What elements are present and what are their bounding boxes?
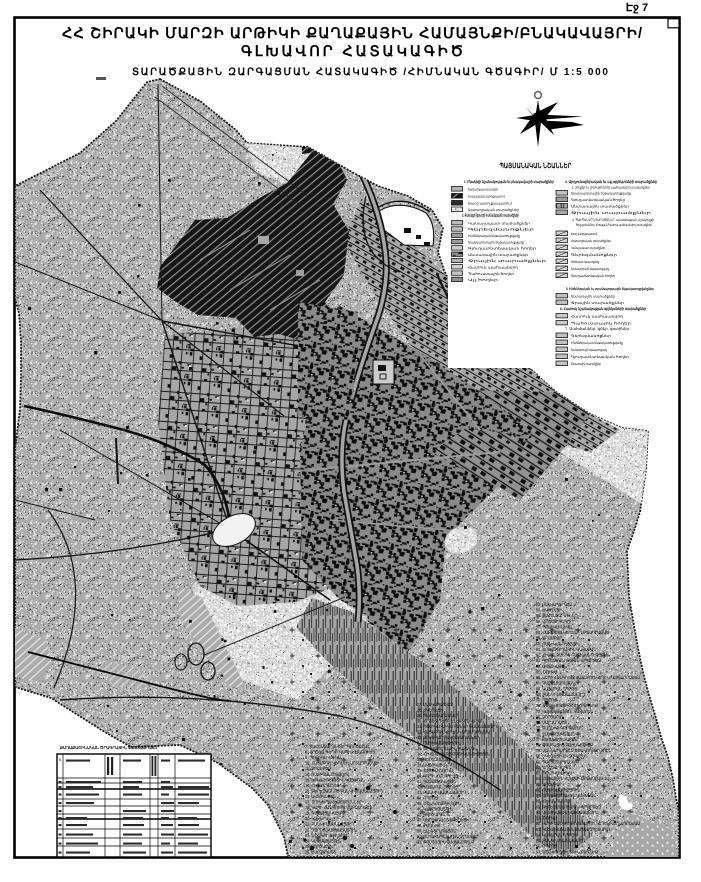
svg-text:1. Բնակելի նշանակության եւ բնա: 1. Բնակելի նշանակության եւ բնակավայրի տա…	[464, 179, 554, 184]
svg-text:19. ԳԱԶԱԼՑԱԿԱՅԱՆ: 19. ԳԱԶԱԼՑԱԿԱՅԱՆ	[305, 811, 344, 816]
svg-text:27. ՄԱՆԿԱՊԱՐՏԵԶ: 27. ՄԱՆԿԱՊԱՐՏԵԶ	[417, 702, 453, 707]
svg-text:8. ՀՐՇԵՋ ԴԵՊՈ ԿԱՊԻ ՀԱՆԳՈՒՅՑ: 8. ՀՐՇԵՋ ԴԵՊՈ ԿԱՊԻ ՀԱՆԳՈՒՅՑ	[305, 750, 375, 755]
svg-text:26. ՄԱՐԶԱԴԱՇՏ: 26. ՄԱՐԶԱԴԱՇՏ	[305, 849, 336, 854]
svg-text:Կանաչապատ տարածքներ: Կանաչապատ տարածքներ	[468, 220, 531, 225]
svg-text:12. ՈՍՏԻԿԱՆՈՒԹՅՈՒՆ: 12. ՈՍՏԻԿԱՆՈՒԹՅՈՒՆ	[305, 772, 349, 777]
svg-text:Բնակելի կառուցապատման տարածքնե: Բնակելի կառուցապատման տարածքներ	[468, 187, 498, 192]
svg-text:20. ԿԱՅԱՐԱՆ: 20. ԿԱՅԱՐԱՆ	[305, 816, 331, 821]
svg-text:84. ՀԱՑԱԲՈՒԼԿԵՂԵՆԻ ԱՐՏԱԴՐԱՄԱՍ: 84. ՀԱՑԱԲՈՒԼԿԵՂԵՆԻ ԱՐՏԱԴՐԱՄԱՍ	[536, 776, 609, 781]
svg-text:89. ԳԵՐԵԶՄԱՆՈՑ ՄԱՆԿԱՊԱՐՏԵԶ: 89. ԳԵՐԵԶՄԱՆՈՑ ՄԱՆԿԱՊԱՐՏԵԶ	[536, 804, 601, 809]
svg-text:ՀՀ ՇԻՐԱԿԻ ՄԱՐԶԻ ԱՐԹԻԿԻ ՔԱՂԱՔԱՅ: ՀՀ ՇԻՐԱԿԻ ՄԱՐԶԻ ԱՐԹԻԿԻ ՔԱՂԱՔԱՅԻՆ ՀԱՄԱՅՆՔ…	[62, 26, 642, 42]
svg-text:68. ԿԱՅԱՐԱՆ ԴՊՐՈՑ: 68. ԿԱՅԱՐԱՆ ԴՊՐՈՑ	[536, 686, 577, 691]
svg-text:39. ՇՈՒԿԱ ՇՈՒԿԱ: 39. ՇՈՒԿԱ ՇՈՒԿԱ	[417, 768, 453, 773]
svg-text:71. ՄՇԱԿՈՒՅԹԻ ՏՈՒՆ ԲԱՂՆԻՔ: 71. ՄՇԱԿՈՒՅԹԻ ՏՈՒՆ ԲԱՂՆԻՔ	[536, 703, 598, 708]
svg-text:55. ՊԱՀԵՍՏԱՐԱՆՆԵՐ: 55. ՊԱՀԵՍՏԱՐԱՆՆԵՐ	[536, 613, 577, 618]
svg-text:Տրանսպորտային ենթակառուցվածք: Տրանսպորտային ենթակառուցվածք	[468, 239, 525, 244]
svg-text:17. ՇՈՒԿԱ ՊԱՀԵՍՏԱՐԱՆՆԵՐ: 17. ՇՈՒԿԱ ՊԱՀԵՍՏԱՐԱՆՆԵՐ	[305, 800, 362, 805]
svg-text:97. ՄՇԱԿՈՒՅԹԻ ՏՈՒՆ ԲԱՂՆԻՔ: 97. ՄՇԱԿՈՒՅԹԻ ՏՈՒՆ ԲԱՂՆԻՔ	[536, 849, 598, 854]
svg-text:Գերեզմանոցներ: Գերեզմանոցներ	[468, 227, 536, 232]
svg-text:Ինժեներական ենթակառուցվածք: Ինժեներական ենթակառուցվածք	[571, 340, 624, 345]
svg-text:Գերեզմանոցներ: Գերեզմանոցներ	[571, 333, 612, 338]
svg-text:Խառը կառուցապատում: Խառը կառուցապատում	[468, 201, 513, 206]
svg-text:96. ԴՊՐՈՑ: 96. ԴՊՐՈՑ	[536, 844, 557, 849]
svg-text:Գերեզմանոցներ: Գերեզմանոցներ	[571, 252, 618, 257]
svg-text:81. ՊԱՀԵՍՏԱՐԱՆՆԵՐ: 81. ՊԱՀԵՍՏԱՐԱՆՆԵՐ	[536, 759, 577, 764]
svg-text:93. ԳԱԶԱԼՑԱԿԱՅԱՆ ՔԱՂԱՔԱՊԵՏԱՐԱՆ: 93. ԳԱԶԱԼՑԱԿԱՅԱՆ ՔԱՂԱՔԱՊԵՏԱՐԱՆ	[536, 827, 611, 832]
svg-text:90. ԱՎՏՈԿԱՅԱՆ ԿԱԹՍԱՅԱՏՈՒՆ: 90. ԱՎՏՈԿԱՅԱՆ ԿԱԹՍԱՅԱՏՈՒՆ	[536, 810, 598, 815]
svg-text:6. Հատուկ նշանակության օբյեկտն: 6. Հատուկ նշանակության օբյեկտների տարածք…	[560, 306, 646, 311]
svg-text:47. ԳՈՐԾԱՐԱՆ: 47. ԳՈՐԾԱՐԱՆ	[417, 812, 445, 817]
svg-text:77. ՔԱՂԱՔԱՊԵՏԱՐԱՆ: 77. ՔԱՂԱՔԱՊԵՏԱՐԱՆ	[536, 737, 577, 742]
svg-text:35. ԵՐԿԱԹՈՒՂԱՅԻՆ ԿԱՅԱՐԱՆ: 35. ԵՐԿԱԹՈՒՂԱՅԻՆ ԿԱՅԱՐԱՆ	[417, 746, 477, 751]
svg-text:70. ԴՊՐՈՑ: 70. ԴՊՐՈՑ	[536, 698, 557, 703]
svg-text:14. ՀԻՎԱՆԴԱՆՈՑ: 14. ՀԻՎԱՆԴԱՆՈՑ	[305, 783, 339, 788]
svg-text:95. ԲԱՆԿԻ ՄԱՍՆԱՃՅՈՒՂ: 95. ԲԱՆԿԻ ՄԱՍՆԱՃՅՈՒՂ	[536, 838, 585, 843]
svg-text:Արտադրական տարածքներ: Արտադրական տարածքներ	[571, 238, 612, 243]
svg-text:50. ԷԼԵԿՏՐԱԿԱՅԱՆ: 50. ԷԼԵԿՏՐԱԿԱՅԱՆ	[417, 829, 456, 834]
svg-text:74. ՄԱՐԶԱԴԱՇՏ: 74. ՄԱՐԶԱԴԱՇՏ	[536, 720, 567, 725]
svg-text:Գյուղատնտեսական հողեր: Գյուղատնտեսական հողեր	[571, 197, 626, 202]
svg-text:80. ԵԿԵՂԵՑԻ ԱՎՏՈԿԱՅԱՆ: 80. ԵԿԵՂԵՑԻ ԱՎՏՈԿԱՅԱՆ	[536, 754, 588, 759]
svg-text:Տրանսպորտային ենթակառուցվածք: Տրանսպորտային ենթակառուցվածք	[571, 347, 607, 352]
svg-text:Պահուստային հողեր: Պահուստային հողեր	[571, 320, 632, 325]
svg-text:83. ՊՈԼԻԿԼԻՆԻԿԱ: 83. ՊՈԼԻԿԼԻՆԻԿԱ	[536, 771, 572, 776]
svg-text:Էջ 7: Էջ 7	[626, 2, 648, 14]
svg-text:94. ԿԱՅԱՐԱՆ ԴՊՐՈՑ: 94. ԿԱՅԱՐԱՆ ԴՊՐՈՑ	[536, 832, 577, 837]
svg-text:Անտառային տարածքներ: Անտառային տարածքներ	[571, 361, 601, 366]
svg-text:Ջրային տարածքներ: Ջրային տարածքներ	[571, 210, 652, 215]
svg-text:Գյուղատնտեսական հողեր: Գյուղատնտեսական հողեր	[468, 246, 537, 251]
svg-text:Տրանսպորտային ենթակառուցվածք: Տրանսպորտային ենթակառուցվածք	[571, 191, 632, 196]
svg-text:10. ՀԱՑԱԲՈՒԼԿԵՂԵՆԻ ԱՐՏԱԴՐԱՄԱՍ: 10. ՀԱՑԱԲՈՒԼԿԵՂԵՆԻ ԱՐՏԱԴՐԱՄԱՍ	[305, 761, 378, 766]
svg-text:3. Արդյունաբերական եւ այլ օբյե: 3. Արդյունաբերական եւ այլ օբյեկտների տար…	[565, 179, 657, 184]
svg-text:46. ԿԱԹՍԱՅԱՏՈՒՆ: 46. ԿԱԹՍԱՅԱՏՈՒՆ	[417, 807, 453, 812]
svg-text:Այլ հողեր: Այլ հողեր	[468, 277, 499, 282]
svg-text:28. ԵԿԵՂԵՑԻ: 28. ԵԿԵՂԵՑԻ	[417, 708, 443, 713]
svg-text:54. ԵԿԵՂԵՑԻ: 54. ԵԿԵՂԵՑԻ	[536, 608, 562, 613]
svg-text:22. ԴՊՐՈՑ ԿԱԹՍԱՅԱՏՈՒՆ: 22. ԴՊՐՈՑ ԿԱԹՍԱՅԱՏՈՒՆ	[305, 827, 357, 832]
svg-text:79. ՄԱՆԿԱՊԱՐՏԵԶ ՄՇԱԿՈՒՅԹԻ ՏՈՒՆ: 79. ՄԱՆԿԱՊԱՐՏԵԶ ՄՇԱԿՈՒՅԹԻ ՏՈՒՆ	[536, 748, 611, 753]
svg-text:34. ՈՍՏԻԿԱՆՈՒԹՅՈՒՆ: 34. ՈՍՏԻԿԱՆՈՒԹՅՈՒՆ	[417, 741, 461, 746]
svg-text:87. ԵՐԿԱԹՈՒՂԱՅԻՆ ԿԱՅԱՐԱՆ: 87. ԵՐԿԱԹՈՒՂԱՅԻՆ ԿԱՅԱՐԱՆ	[536, 793, 596, 798]
svg-text:67. ԳԱԶԱԼՑԱԿԱՅԱՆ: 67. ԳԱԶԱԼՑԱԿԱՅԱՆ	[536, 681, 575, 686]
svg-text:85. ՋՐԱՄԲԱՐ: 85. ՋՐԱՄԲԱՐ	[536, 782, 562, 787]
svg-text:16. ԱՎՏՈԿԱՅԱՆ: 16. ԱՎՏՈԿԱՅԱՆ	[305, 794, 336, 799]
svg-text:59. ՋՐԱՄԲԱՐ: 59. ՋՐԱՄԲԱՐ	[536, 636, 562, 641]
svg-text:21. ԲԱՆԿԻ ՄԱՍՆԱՃՅՈՒՂ: 21. ԲԱՆԿԻ ՄԱՍՆԱՃՅՈՒՂ	[305, 822, 354, 827]
svg-text:56. ՀՐՇԵՋ ԴԵՊՈ: 56. ՀՐՇԵՋ ԴԵՊՈ	[536, 619, 570, 624]
svg-text:63. ԳԵՐԵԶՄԱՆՈՑ ՄԱՆԿԱՊԱՐՏԵԶ: 63. ԳԵՐԵԶՄԱՆՈՑ ՄԱՆԿԱՊԱՐՏԵԶ	[536, 658, 601, 663]
svg-text:1. շենքեր եւ շինություններ պահ: 1. շենքեր եւ շինություններ պահպանվող տար…	[572, 185, 651, 190]
svg-text:9. ՊՈԼԻԿԼԻՆԻԿԱ: 9. ՊՈԼԻԿԼԻՆԻԿԱ	[305, 755, 341, 760]
svg-text:Ինժեներական ենթակառուցվածք: Ինժեներական ենթակառուցվածք	[571, 259, 599, 264]
svg-text:78. ՓՈՍՏԱՅԻՆ ԲԱԺԱՆՄՈՒՆՔ: 78. ՓՈՍՏԱՅԻՆ ԲԱԺԱՆՄՈՒՆՔ	[536, 743, 593, 748]
svg-text:7. ՊԱՀԵՍՏԱՐԱՆՆԵՐ ԳՈՐԾԱՐԱՆ: 7. ՊԱՀԵՍՏԱՐԱՆՆԵՐ ԳՈՐԾԱՐԱՆ	[305, 744, 370, 749]
svg-text:Անտառային տարածքներ: Անտառային տարածքներ	[571, 293, 616, 298]
svg-text:86. ՈՍՏԻԿԱՆՈՒԹՅՈՒՆ: 86. ՈՍՏԻԿԱՆՈՒԹՅՈՒՆ	[536, 787, 580, 792]
svg-text:73. ԳՈՐԾԱՐԱՆ: 73. ԳՈՐԾԱՐԱՆ	[536, 714, 564, 719]
svg-text:65. ՇՈՒԿԱ: 65. ՇՈՒԿԱ	[536, 669, 557, 674]
svg-text:57. ՊՈԼԻԿԼԻՆԻԿԱ: 57. ՊՈԼԻԿԼԻՆԻԿԱ	[536, 624, 572, 629]
svg-text:60. ՈՍՏԻԿԱՆՈՒԹՅՈՒՆ: 60. ՈՍՏԻԿԱՆՈՒԹՅՈՒՆ	[536, 641, 580, 646]
svg-text:44. ԴՊՐՈՑ: 44. ԴՊՐՈՑ	[417, 796, 438, 801]
svg-text:24. ԿԱԹՍԱՅԱՏՈՒՆ: 24. ԿԱԹՍԱՅԱՏՈՒՆ	[305, 838, 341, 843]
svg-text:52. ՓՈՍՏԱՅԻՆ ԲԱԺԱՆՄՈՒՆՔ: 52. ՓՈՍՏԱՅԻՆ ԲԱԺԱՆՄՈՒՆՔ	[417, 840, 474, 845]
svg-text:Անտառային տարածքներ: Անտառային տարածքներ	[571, 204, 630, 209]
svg-text:Պահուստային հողեր: Պահուստային հողեր	[468, 271, 515, 276]
svg-text:38. ԱՎՏՈԿԱՅԱՆ: 38. ԱՎՏՈԿԱՅԱՆ	[417, 763, 448, 768]
svg-text:Տրանսպորտային ենթակառուցվածք: Տրանսպորտային ենթակառուցվածք	[571, 266, 609, 271]
svg-text:Հատուկ պահպանվող: Հատուկ պահպանվող	[468, 265, 519, 270]
svg-text:Գյուղատնտեսական հողեր: Գյուղատնտեսական հողեր	[571, 273, 616, 278]
svg-text:ՏԱՐԱԾՔԱՅԻՆ ԶԱՐԳԱՑՄԱՆ ՀԱՏԱԿԱԳԻԾ: ՏԱՐԱԾՔԱՅԻՆ ԶԱՐԳԱՑՄԱՆ ՀԱՏԱԿԱԳԻԾ /ՀԻՄՆԱԿԱՆ…	[132, 67, 608, 78]
svg-text:64. ԱՎՏՈԿԱՅԱՆ: 64. ԱՎՏՈԿԱՅԱՆ	[536, 664, 567, 669]
svg-text:41. ԳԱԶԱԼՑԱԿԱՅԱՆ: 41. ԳԱԶԱԼՑԱԿԱՅԱՆ	[417, 779, 456, 784]
svg-text:42. ԿԱՅԱՐԱՆ ԴՊՐՈՑ: 42. ԿԱՅԱՐԱՆ ԴՊՐՈՑ	[417, 785, 458, 790]
svg-text:Հատուկ պահպանվող: Հատուկ պահպանվող	[571, 313, 624, 318]
svg-text:18. ԿԱՊԻ ՀԱՆԳՈՒՅՑ ՄԱՐԶԱԴԱՇՏ: 18. ԿԱՊԻ ՀԱՆԳՈՒՅՑ ՄԱՐԶԱԴԱՇՏ	[305, 805, 372, 810]
svg-text:32. ՀԱՑԱԲՈՒԼԿԵՂԵՆԻ ԱՐՏԱԴՐԱՄԱՍ: 32. ՀԱՑԱԲՈՒԼԿԵՂԵՆԻ ԱՐՏԱԴՐԱՄԱՍ	[417, 730, 490, 735]
svg-text:4. ՊԱՀՊԱՆՎՈՂ ՏԱՐԱԾՔՆԵՐ, պատմու: 4. ՊԱՀՊԱՆՎՈՂ ՏԱՐԱԾՔՆԵՐ, պատմության, մշակ…	[572, 217, 655, 222]
svg-text:15. ԳԵՐԵԶՄԱՆՈՑ ԲԱՆԿԻ ՄԱՍՆԱՃՅՈՒ: 15. ԳԵՐԵԶՄԱՆՈՑ ԲԱՆԿԻ ՄԱՍՆԱՃՅՈՒՂ	[305, 788, 383, 793]
svg-text:88. ՀԻՎԱՆԴԱՆՈՑ: 88. ՀԻՎԱՆԴԱՆՈՑ	[536, 799, 570, 804]
svg-text:66. ԿԱՊԻ ՀԱՆԳՈՒՅՑ ՀԱՑԱԲՈՒԼԿԵՂԵ: 66. ԿԱՊԻ ՀԱՆԳՈՒՅՑ ՀԱՑԱԲՈՒԼԿԵՂԵՆԻ ԱՐՏԱԴՐԱ…	[536, 675, 640, 680]
svg-text:40. ԿԱՊԻ ՀԱՆԳՈՒՅՑ: 40. ԿԱՊԻ ՀԱՆԳՈՒՅՑ	[417, 774, 458, 779]
svg-text:51. ՔԱՂԱՔԱՊԵՏԱՐԱՆ ՋՐԱՄԲԱՐ: 51. ՔԱՂԱՔԱՊԵՏԱՐԱՆ ՋՐԱՄԲԱՐ	[417, 834, 479, 839]
svg-text:23. ՄՇԱԿՈՒՅԹԻ ՏՈՒՆ: 23. ՄՇԱԿՈՒՅԹԻ ՏՈՒՆ	[305, 833, 349, 838]
svg-text:Հասարակական կառուցապատում: Հասարակական կառուցապատում	[468, 194, 505, 199]
svg-text:92. ԿԱՊԻ ՀԱՆԳՈՒՅՑ ՀԱՑԱԲՈՒԼԿԵՂԵ: 92. ԿԱՊԻ ՀԱՆԳՈՒՅՑ ՀԱՑԱԲՈՒԼԿԵՂԵՆԻ ԱՐՏԱԴՐԱ…	[536, 821, 640, 826]
svg-text:Գյուղատնտեսական հողեր: Գյուղատնտեսական հողեր	[571, 354, 630, 359]
svg-text:53. ՄԱՆԿԱՊԱՐՏԵԶ: 53. ՄԱՆԿԱՊԱՐՏԵԶ	[536, 602, 572, 607]
svg-text:Անտառային տարածքներ: Անտառային տարածքներ	[468, 252, 529, 257]
svg-text:49. ԲԱՂՆԻՔ: 49. ԲԱՂՆԻՔ	[417, 823, 440, 828]
svg-text:Ինժեներական ենթակառուցվածք: Ինժեներական ենթակառուցվածք	[468, 233, 521, 238]
svg-text:Ջրային տարածքներ: Ջրային տարածքներ	[571, 300, 625, 305]
svg-text:29. ՊԱՀԵՍՏԱՐԱՆՆԵՐ: 29. ՊԱՀԵՍՏԱՐԱՆՆԵՐ	[417, 713, 458, 718]
svg-text:75. ԲԱՂՆԻՔ ԳՈՐԾԱՐԱՆ: 75. ԲԱՂՆԻՔ ԳՈՐԾԱՐԱՆ	[536, 726, 583, 731]
svg-text:7. Սահմաններ, գծեր, գոտիներ: 7. Սահմաններ, գծեր, գոտիներ	[565, 326, 629, 331]
svg-text:հուշարձաններ, բնության հատուկ: հուշարձաններ, բնության հատուկ պահպանվող …	[576, 222, 652, 227]
svg-text:36. ՀԻՎԱՆԴԱՆՈՑ ՈՍՏԻԿԱՆՈՒԹՅՈՒՆ: 36. ՀԻՎԱՆԴԱՆՈՑ ՈՍՏԻԿԱՆՈՒԹՅՈՒՆ	[417, 752, 490, 757]
svg-text:45. ՄՇԱԿՈՒՅԹԻ ՏՈՒՆ: 45. ՄՇԱԿՈՒՅԹԻ ՏՈՒՆ	[417, 801, 461, 806]
svg-text:Կանաչապատ տարածքներ: Կանաչապատ տարածքներ	[571, 245, 605, 250]
svg-text:91. ՇՈՒԿԱ: 91. ՇՈՒԿԱ	[536, 816, 557, 821]
svg-text:Արտադրական տարածքներ: Արտադրական տարածքներ	[468, 207, 520, 212]
svg-text:61. ԵՐԿԱԹՈՒՂԱՅԻՆ ԿԱՅԱՐԱՆ: 61. ԵՐԿԱԹՈՒՂԱՅԻՆ ԿԱՅԱՐԱՆ	[536, 647, 596, 652]
svg-text:ԳԼԽԱՎՈՐ ՀԱՏԱԿԱԳԻԾ: ԳԼԽԱՎՈՐ ՀԱՏԱԿԱԳԻԾ	[241, 44, 463, 60]
svg-text:58. ՀԱՑԱԲՈՒԼԿԵՂԵՆԻ ԱՐՏԱԴՐԱՄԱՍ: 58. ՀԱՑԱԲՈՒԼԿԵՂԵՆԻ ԱՐՏԱԴՐԱՄԱՍ	[536, 630, 609, 635]
svg-text:31. ՊՈԼԻԿԼԻՆԻԿԱ ԲԱՆԿԻ ՄԱՍՆԱՃՅՈ: 31. ՊՈԼԻԿԼԻՆԻԿԱ ԲԱՆԿԻ ՄԱՍՆԱՃՅՈՒՂ	[417, 724, 497, 729]
svg-text:30. ՀՐՇԵՋ ԴԵՊՈ ԷԼԵԿՏՐԱԿԱՅԱՆ: 30. ՀՐՇԵՋ ԴԵՊՈ ԷԼԵԿՏՐԱԿԱՅԱՆ	[417, 719, 484, 724]
svg-text:ՔԱՂԱՔԱՇԻՆԱԿԱՆ ԾՐԱԳՐԱՅԻՆ ՓԱՍՏԱԹ: ՔԱՂԱՔԱՇԻՆԱԿԱՆ ԾՐԱԳՐԱՅԻՆ ՓԱՍՏԱԹՂԹԵՐ	[60, 745, 159, 750]
svg-text:ՊԱՅՄԱՆԱԿԱՆ ՆՇԱՆՆԵՐ: ՊԱՅՄԱՆԱԿԱՆ ՆՇԱՆՆԵՐ	[500, 161, 572, 170]
svg-text:69. ԲԱՆԿԻ ՄԱՍՆԱՃՅՈՒՂ: 69. ԲԱՆԿԻ ՄԱՍՆԱՃՅՈՒՂ	[536, 692, 585, 697]
svg-text:48. ՄԱՐԶԱԴԱՇՏ ԵԿԵՂԵՑԻ: 48. ՄԱՐԶԱԴԱՇՏ ԵԿԵՂԵՑԻ	[417, 818, 469, 823]
svg-text:62. ՀԻՎԱՆԴԱՆՈՑ ՈՍՏԻԿԱՆՈՒԹՅՈՒՆ: 62. ՀԻՎԱՆԴԱՆՈՑ ՈՍՏԻԿԱՆՈՒԹՅՈՒՆ	[536, 653, 609, 658]
svg-text:Ջրային տարածքներ: Ջրային տարածքներ	[468, 258, 547, 263]
svg-text:33. ՋՐԱՄԲԱՐ ՊԱՀԵՍՏԱՐԱՆՆԵՐ: 33. ՋՐԱՄԲԱՐ ՊԱՀԵՍՏԱՐԱՆՆԵՐ	[417, 735, 479, 740]
svg-text:37. ԳԵՐԵԶՄԱՆՈՑ: 37. ԳԵՐԵԶՄԱՆՈՑ	[417, 757, 451, 762]
svg-text:11. ՋՐԱՄԲԱՐ: 11. ՋՐԱՄԲԱՐ	[305, 766, 331, 771]
svg-text:76. ԷԼԵԿՏՐԱԿԱՅԱՆ: 76. ԷԼԵԿՏՐԱԿԱՅԱՆ	[536, 731, 575, 736]
svg-text:13. ԵՐԿԱԹՈՒՂԱՅԻՆ ԿԱՅԱՐԱՆ: 13. ԵՐԿԱԹՈՒՂԱՅԻՆ ԿԱՅԱՐԱՆ	[305, 777, 365, 782]
svg-text:25. ԳՈՐԾԱՐԱՆ: 25. ԳՈՐԾԱՐԱՆ	[305, 844, 333, 849]
svg-text:72. ԿԱԹՍԱՅԱՏՈՒՆ ԿԱՅԱՐԱՆ: 72. ԿԱԹՍԱՅԱՏՈՒՆ ԿԱՅԱՐԱՆ	[536, 709, 593, 714]
svg-text:Խառը կառուցապատում: Խառը կառուցապատում	[571, 231, 597, 236]
svg-text:2. Քաղաքի (գյուղի) համայնքային: 2. Քաղաքի (գյուղի) համայնքային տարածքներ	[462, 213, 519, 218]
svg-text:43. ԲԱՆԿԻ ՄԱՍՆԱՃՅՈՒՂ: 43. ԲԱՆԿԻ ՄԱՍՆԱՃՅՈՒՂ	[417, 790, 466, 795]
svg-text:82. ՀՐՇԵՋ ԴԵՊՈ: 82. ՀՐՇԵՋ ԴԵՊՈ	[536, 765, 570, 770]
